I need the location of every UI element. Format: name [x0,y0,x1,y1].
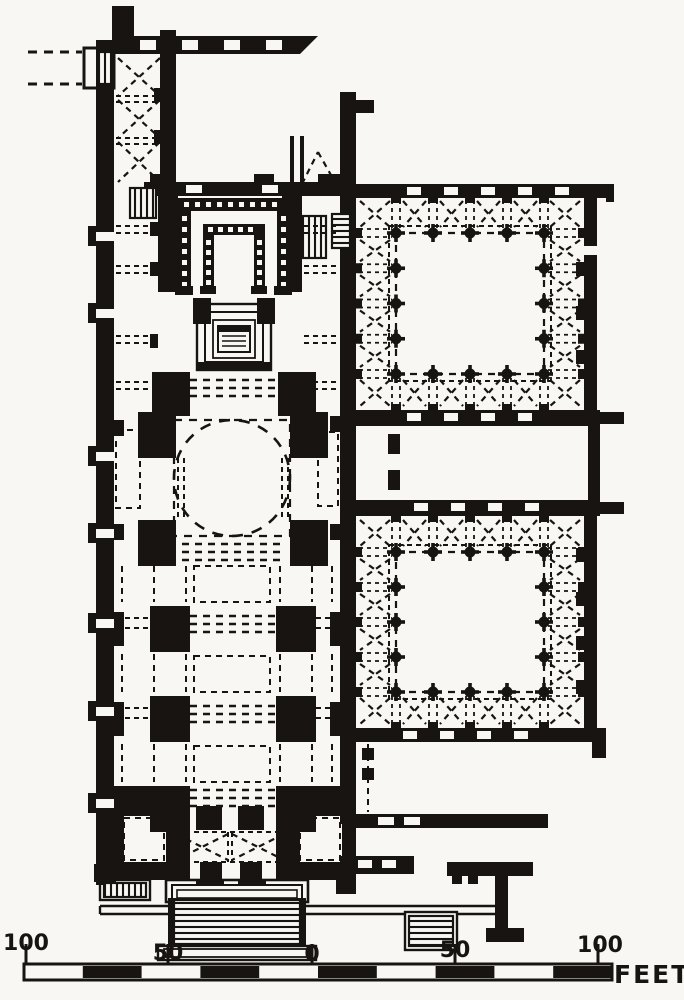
window-gap [206,270,211,275]
cloister-column [535,550,553,554]
wall-segment [150,334,158,348]
cloister-column [387,550,405,554]
cloister-column [535,620,553,624]
wall-segment [114,862,190,880]
wall-segment [340,92,356,824]
window-gap [208,227,213,232]
wall-segment [502,404,512,410]
court-border [396,233,544,374]
window-gap [248,227,253,232]
stair-treads [130,188,156,218]
scale-unit-label: FEET [614,960,684,989]
outline-rect [177,890,297,898]
window-gap [281,238,286,243]
window-gap [488,503,502,511]
window-gap [96,529,114,538]
nave-bay-outline [194,566,270,602]
wall-segment [356,228,362,238]
wall-segment [465,404,475,410]
window-gap [182,260,187,265]
window-gap [206,202,211,207]
wall-segment [240,862,262,880]
scale-tick-label-0: 0 [304,942,319,967]
wall-segment [465,516,475,522]
cloister-column [535,302,553,306]
wall-segment [150,696,190,742]
window-gap [281,271,286,276]
cloister-column [498,690,516,694]
wall-segment [391,722,401,728]
wall-segment [254,174,274,182]
window-gap [477,731,491,739]
wall-segment [88,446,96,466]
wall-segment [150,222,158,236]
wall-segment [606,184,614,202]
window-gap [382,860,396,868]
wall-segment [196,806,222,830]
cloister-column [424,550,442,554]
wall-segment [502,722,512,728]
scale-bar-segment [436,966,495,978]
wall-segment [114,524,124,540]
window-gap [281,249,286,254]
scale-tick-label-100-right: 100 [577,933,623,958]
wall-segment [578,547,584,557]
window-gap [440,731,454,739]
stair-treads [332,214,350,248]
wall-segment [356,500,600,516]
window-gap [238,227,243,232]
window-gap [358,860,372,868]
window-gap [96,799,114,808]
wall-segment [144,182,344,196]
wall-segment [114,816,124,862]
wall-segment [356,369,362,379]
window-gap [555,187,569,195]
window-gap [514,731,528,739]
cloister-column [387,690,405,694]
cloister-column [461,690,479,694]
court-border [396,552,544,692]
wall-segment [465,722,475,728]
court-border [389,545,551,699]
scale-bar-segment [553,966,612,978]
wall-segment [200,862,222,880]
nave-bay-outline [194,656,270,692]
wall-segment [200,286,216,294]
wall-segment [94,864,116,882]
wall-segment [178,198,191,290]
window-gap [206,240,211,245]
cloister-column [424,231,442,235]
wall-segment [175,286,193,295]
window-gap [407,187,421,195]
wall-segment [578,299,584,309]
window-gap [218,227,223,232]
cloister-column [461,550,479,554]
wall-segment [600,502,624,514]
scale-bar-segment [200,966,259,978]
window-gap [266,40,282,50]
window-gap [182,227,187,232]
wall-segment [356,263,362,273]
wall-segment [578,687,584,697]
wall-segment [290,520,328,566]
wall-segment [539,197,549,203]
stair-treads [98,52,112,84]
scale-tick-label-100-left: 100 [3,931,49,956]
window-gap [481,187,495,195]
window-gap [140,40,156,50]
window-gap [257,260,262,265]
plan-linework [28,6,624,960]
wall-segment [274,286,292,295]
wall-segment [578,617,584,627]
cloister-column [461,372,479,376]
wall-segment [96,40,114,885]
wall-segment [486,928,524,942]
cloister-column [535,372,553,376]
wall-segment [330,524,340,540]
window-gap [262,185,278,193]
wall-segment [114,786,190,816]
window-gap [281,216,286,221]
wall-segment [290,412,328,458]
window-gap [518,187,532,195]
window-gap [518,413,532,421]
wall-segment [238,806,264,830]
nave-bay-outline [194,746,270,782]
wall-segment [356,652,362,662]
cloister-column [387,302,405,306]
cloister-column [387,620,405,624]
wall-segment [465,197,475,203]
outline-rect [172,885,302,899]
wall-segment [160,30,176,184]
cloister-column [387,585,405,589]
wall-segment [428,516,438,522]
stair-treads [174,900,300,944]
stair-treads [104,883,146,897]
wall-segment [336,872,356,894]
cloister-column [461,231,479,235]
window-gap [182,271,187,276]
window-gap [444,413,458,421]
window-gap [182,238,187,243]
window-gap [414,503,428,511]
wall-segment [356,687,362,697]
window-gap [206,250,211,255]
window-gap [281,260,286,265]
wall-segment [388,434,400,454]
window-gap [257,240,262,245]
wall-segment [88,523,96,543]
wall-segment [340,856,414,874]
window-gap [96,452,114,461]
window-gap [96,232,114,241]
wall-segment [112,6,134,40]
wall-segment [277,198,290,290]
window-gap [404,817,420,825]
wall-segment [539,404,549,410]
wall-segment [150,174,170,182]
wall-segment [138,520,176,566]
wall-segment [138,412,176,458]
window-gap [206,280,211,285]
wall-segment [447,862,533,876]
window-gap [257,280,262,285]
window-gap [228,227,233,232]
wall-segment [356,100,374,113]
wall-segment [578,582,584,592]
wall-segment [276,606,316,652]
wall-segment [578,228,584,238]
window-gap [261,202,266,207]
wall-segment [218,326,250,332]
wall-segment [356,410,600,426]
wall-segment [428,197,438,203]
wall-segment [88,303,96,323]
wall-segment [576,350,584,364]
window-gap [451,503,465,511]
wall-segment [391,404,401,410]
wall-segment [152,372,190,416]
floor-plan-figure: 100 50 0 50 100 FEET [0,0,684,1000]
window-gap [407,413,421,421]
wall-segment [356,617,362,627]
window-gap [195,202,200,207]
window-gap [96,619,114,628]
scale-bar: 100 50 0 50 100 FEET [3,931,684,989]
window-gap [281,227,286,232]
court-border [389,226,551,381]
wall-segment [578,369,584,379]
wall-segment [197,362,271,370]
window-gap [96,707,114,716]
window-gap [525,503,539,511]
wall-segment [276,696,316,742]
wall-segment [539,516,549,522]
window-gap [272,202,277,207]
cloister-column [535,266,553,270]
window-gap [186,185,202,193]
stair-treads [300,216,326,258]
wall-segment [356,334,362,344]
scale-tick-label-50-left: 50 [153,941,184,966]
wall-segment [502,197,512,203]
wall-segment [278,372,316,416]
wall-segment [150,262,158,276]
wall-segment [600,412,624,424]
wall-segment [318,174,342,182]
wall-segment [578,334,584,344]
wall-segment [428,404,438,410]
wall-segment [88,613,96,633]
wall-segment [578,263,584,273]
cloister-column [387,655,405,659]
wall-segment [428,722,438,728]
cloister-column [424,372,442,376]
window-gap [217,202,222,207]
wall-segment [584,516,597,740]
window-gap [250,202,255,207]
window-gap [182,249,187,254]
wall-segment [344,728,606,742]
window-gap [224,40,240,50]
wall-segment [391,197,401,203]
window-gap [184,202,189,207]
wall-segment [356,547,362,557]
wall-segment [356,299,362,309]
cloister-column [498,550,516,554]
outline-rect [164,949,310,957]
wall-segment [452,876,462,884]
cloister-column [535,231,553,235]
wall-segment [276,816,300,862]
window-gap [182,216,187,221]
plan-page: 100 50 0 50 100 FEET [0,0,684,1000]
scale-bar-segment [83,966,142,978]
cloister-column [535,337,553,341]
outline-rect [116,430,140,508]
window-gap [228,202,233,207]
wall-segment [88,793,96,813]
wall-segment [193,298,211,324]
wall-segment [114,420,124,436]
wall-segment [539,722,549,728]
wall-segment [495,876,508,932]
wall-segment [330,416,340,432]
window-gap [444,187,458,195]
wall-segment [388,470,400,490]
wall-segment [158,196,178,292]
wall-segment [588,410,600,516]
dashed-line [302,152,318,184]
cloister-column [424,690,442,694]
window-gap [96,309,114,318]
wall-segment [578,652,584,662]
cloister-column [387,372,405,376]
cloister-column [535,655,553,659]
wall-segment [502,516,512,522]
wall-segment [356,582,362,592]
cloister-column [498,372,516,376]
wall-segment [88,226,96,246]
window-gap [378,817,394,825]
wall-segment [276,786,356,816]
dome-circle [174,420,290,536]
window-gap [257,270,262,275]
wall-segment [257,298,275,324]
window-gap [239,202,244,207]
wall-segment [88,701,96,721]
cloister-column [387,337,405,341]
wall-segment [290,136,294,186]
window-gap [206,260,211,265]
wall-segment [391,516,401,522]
wall-segment [300,136,304,186]
wall-segment [150,606,190,652]
cloister-column [498,231,516,235]
scale-tick-label-50-right: 50 [440,938,471,963]
wall-segment [251,286,267,294]
wall-segment [154,88,168,102]
window-gap [584,246,597,255]
window-gap [403,731,417,739]
window-gap [182,40,198,50]
cloister-column [535,585,553,589]
cloister-column [387,231,405,235]
scale-bar-segment [318,966,377,978]
cloister-column [535,690,553,694]
window-gap [257,250,262,255]
window-gap [481,413,495,421]
wall-segment [154,130,168,144]
cloister-column [387,266,405,270]
wall-segment [584,198,597,412]
wall-segment [468,876,478,884]
wall-segment [300,36,318,54]
wall-segment [592,728,606,758]
